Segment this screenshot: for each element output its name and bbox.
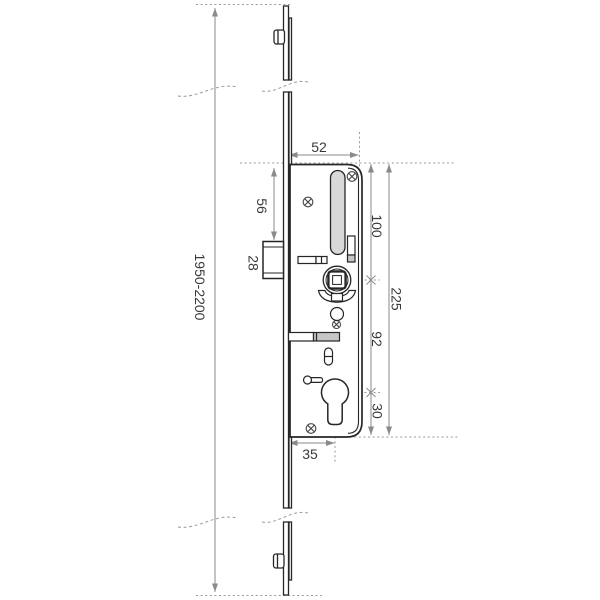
gear-rail-lower-segment — [289, 522, 292, 580]
dim-label-top-to-latch: 56 — [254, 198, 270, 214]
gear-slider — [348, 236, 356, 262]
drawing-canvas: 1950-2200 52 56 28 100 92 30 — [0, 0, 600, 600]
gear-rail-upper-segment — [289, 18, 292, 80]
screw-hole-icon — [347, 172, 357, 182]
break-line — [178, 517, 237, 527]
lock-case — [289, 165, 363, 438]
break-line — [262, 81, 308, 91]
link-slot-vertical — [325, 348, 333, 365]
follower-stop-block — [332, 294, 343, 302]
dim-label-case-height: 225 — [389, 287, 405, 311]
break-line — [262, 512, 308, 522]
pivot-pin — [331, 308, 344, 321]
dim-label-backset: 35 — [302, 446, 318, 462]
dim-label-overall-length: 1950-2200 — [192, 254, 208, 321]
faceplate-middle-segment — [284, 92, 289, 508]
faceplate-rail — [274, 6, 292, 595]
latch-follower-bar — [298, 257, 327, 264]
screw-hole-icon — [333, 321, 341, 329]
link-slot-horizontal — [304, 376, 323, 384]
screw-hole-icon — [306, 424, 316, 434]
dim-label-cylinder-to-bottom: 30 — [370, 403, 386, 419]
latch-bolt — [263, 242, 284, 279]
dim-label-latch-height: 28 — [246, 255, 262, 271]
dim-label-case-width: 52 — [311, 139, 327, 155]
dim-label-spindle-to-cylinder: 92 — [369, 331, 385, 347]
deadbolt — [289, 333, 340, 342]
screw-hole-icon — [303, 197, 313, 207]
handle-lift-slot — [331, 171, 346, 255]
bottom-roller-cam — [274, 554, 285, 568]
top-roller-cam — [274, 30, 285, 44]
break-line — [178, 86, 237, 96]
lock-dimension-drawing: 1950-2200 52 56 28 100 92 30 — [0, 0, 600, 600]
dim-label-top-to-spindle: 100 — [369, 214, 385, 238]
